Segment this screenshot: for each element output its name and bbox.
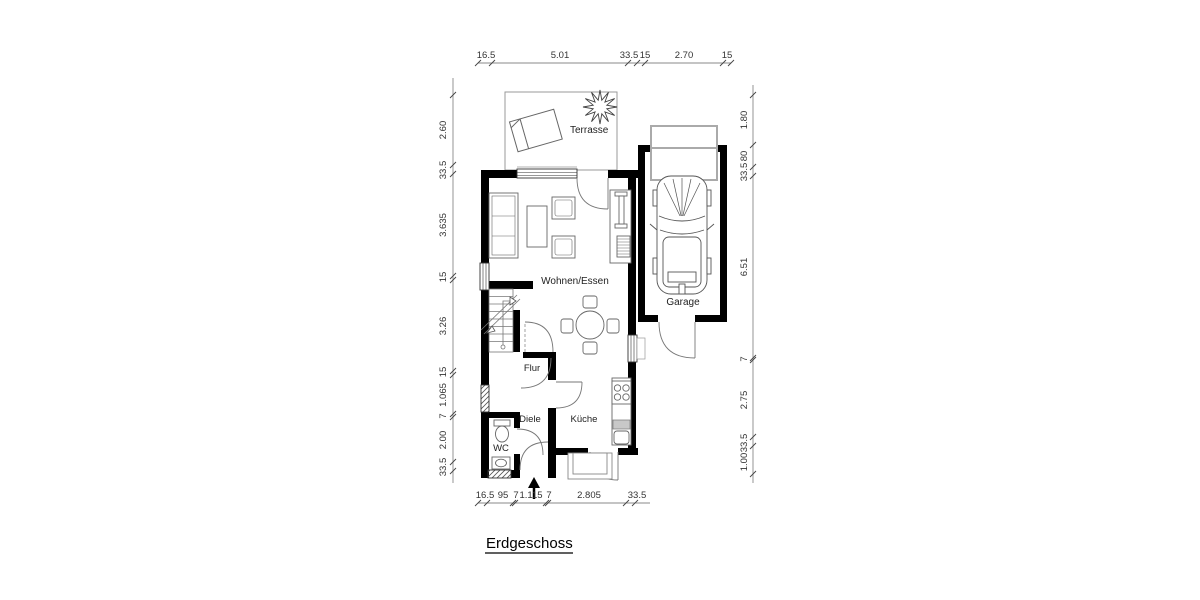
window-dining-right xyxy=(628,335,637,362)
window-sill-dining xyxy=(637,338,645,359)
armchair-icon xyxy=(552,236,575,258)
dim-label: 6.51 xyxy=(739,258,750,277)
outdoor-step xyxy=(568,453,612,479)
room-label-wc: WC xyxy=(493,443,509,454)
window-living-left xyxy=(480,263,489,290)
armchair-icon xyxy=(552,197,575,219)
dim-label: 15 xyxy=(438,367,449,378)
room-label-kueche: Küche xyxy=(571,414,598,425)
dim-label: 16.5 xyxy=(477,50,496,61)
dim-label: 3.26 xyxy=(438,317,449,336)
window-living-top xyxy=(517,169,577,178)
dim-label: 15 xyxy=(640,50,651,61)
room-label-flur: Flur xyxy=(524,363,540,374)
dim-label: 33.5 xyxy=(620,50,639,61)
page-title: Erdgeschoss xyxy=(486,535,573,552)
dim-label: 16.5 xyxy=(476,490,495,501)
dim-label: 33.5 xyxy=(739,434,750,453)
dim-label: 2.00 xyxy=(438,431,449,450)
dim-label: 7 xyxy=(438,413,449,418)
dimension-line-left xyxy=(450,78,456,483)
dim-label: 33.5 xyxy=(438,161,449,180)
cooktop-icon xyxy=(612,381,631,404)
sink-icon xyxy=(614,431,629,444)
floor-plan-page: Terrasse xyxy=(0,0,1200,600)
kitchen-counter-icon xyxy=(612,378,631,445)
dim-label: 2.60 xyxy=(438,121,449,140)
dim-label: 1.065 xyxy=(438,383,449,407)
glass-block-window-wc xyxy=(488,470,511,478)
sofa-icon xyxy=(489,193,518,258)
tree-icon xyxy=(583,90,617,124)
dim-label: 33.5 xyxy=(739,163,750,182)
sideboard-icon xyxy=(610,190,631,263)
dim-label: 7 xyxy=(513,490,518,501)
dim-label: 2.75 xyxy=(739,391,750,410)
room-label-diele: Diele xyxy=(519,414,541,425)
dim-label: 5.01 xyxy=(551,50,570,61)
dim-label: 2.805 xyxy=(577,490,601,501)
dim-label: 33.5 xyxy=(628,490,647,501)
room-label-terrasse: Terrasse xyxy=(570,125,609,136)
coffee-table-icon xyxy=(527,206,547,247)
dim-label: 80 xyxy=(739,151,750,162)
dim-label: 7 xyxy=(739,356,750,361)
glass-block-window-left xyxy=(481,385,489,412)
dim-label: 2.70 xyxy=(675,50,694,61)
dimension-line-right xyxy=(750,85,756,483)
garage-door-icon xyxy=(651,126,717,180)
room-label-garage: Garage xyxy=(666,297,700,308)
dining-table-icon xyxy=(561,296,619,354)
toilet-icon xyxy=(494,420,510,442)
dimension-line-top xyxy=(475,60,734,66)
floor-plan-drawing: Terrasse xyxy=(0,0,1200,600)
dim-label: 7 xyxy=(546,490,551,501)
washbasin-icon xyxy=(492,457,510,469)
dim-label: 15 xyxy=(438,272,449,283)
dim-label: 95 xyxy=(498,490,509,501)
furniture xyxy=(489,176,714,479)
dim-label: 3.635 xyxy=(438,213,449,237)
dim-label: 1.115 xyxy=(519,490,542,501)
dim-label: 15 xyxy=(722,50,733,61)
dim-label: 1.80 xyxy=(739,111,750,130)
dim-label: 33.5 xyxy=(438,458,449,477)
dim-label: 1.00 xyxy=(739,453,750,472)
room-label-wohnen-essen: Wohnen/Essen xyxy=(541,276,609,287)
sun-lounger-icon xyxy=(509,109,562,151)
car-icon xyxy=(650,176,714,294)
